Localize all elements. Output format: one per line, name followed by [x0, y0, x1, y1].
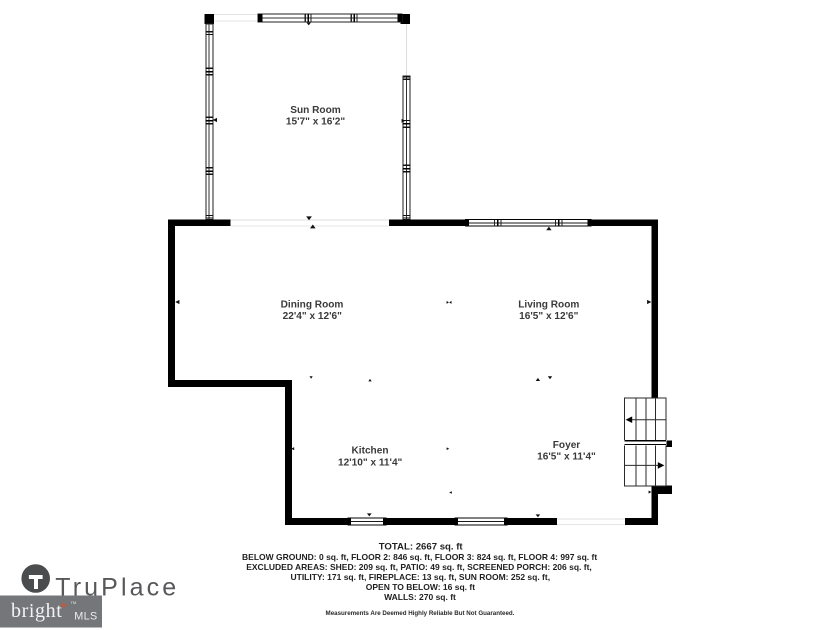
svg-text:bright: bright — [11, 600, 62, 622]
svg-text:UTILITY: 171 sq. ft, FIREPLACE: UTILITY: 171 sq. ft, FIREPLACE: 13 sq. f… — [290, 572, 550, 582]
svg-text:16'5" x 12'6": 16'5" x 12'6" — [519, 311, 578, 322]
svg-text:TM: TM — [71, 600, 77, 605]
svg-text:MLS: MLS — [74, 611, 97, 623]
svg-text:Kitchen: Kitchen — [351, 446, 388, 457]
svg-text:Dining Room: Dining Room — [281, 300, 344, 311]
svg-text:BELOW GROUND: 0 sq. ft, FLOOR: BELOW GROUND: 0 sq. ft, FLOOR 2: 846 sq.… — [242, 552, 597, 562]
svg-text:Sun Room: Sun Room — [290, 105, 340, 116]
svg-text:WALLS: 270 sq. ft: WALLS: 270 sq. ft — [384, 592, 456, 602]
svg-text:OPEN TO BELOW: 16 sq. ft: OPEN TO BELOW: 16 sq. ft — [366, 582, 475, 592]
svg-text:Foyer: Foyer — [553, 440, 581, 451]
svg-text:TOTAL: 2667 sq. ft: TOTAL: 2667 sq. ft — [379, 541, 464, 552]
svg-text:12'10" x 11'4": 12'10" x 11'4" — [338, 457, 403, 468]
svg-text:Measurements Are Deemed Highly: Measurements Are Deemed Highly Reliable … — [326, 610, 515, 617]
svg-text:EXCLUDED AREAS: SHED: 209 sq.: EXCLUDED AREAS: SHED: 209 sq. ft, PATIO:… — [246, 562, 592, 572]
svg-text:15'7" x 16'2": 15'7" x 16'2" — [286, 117, 345, 128]
svg-text:16'5" x 11'4": 16'5" x 11'4" — [537, 452, 596, 463]
svg-text:22'4" x 12'6": 22'4" x 12'6" — [283, 311, 342, 322]
svg-text:Living Room: Living Room — [518, 300, 579, 311]
